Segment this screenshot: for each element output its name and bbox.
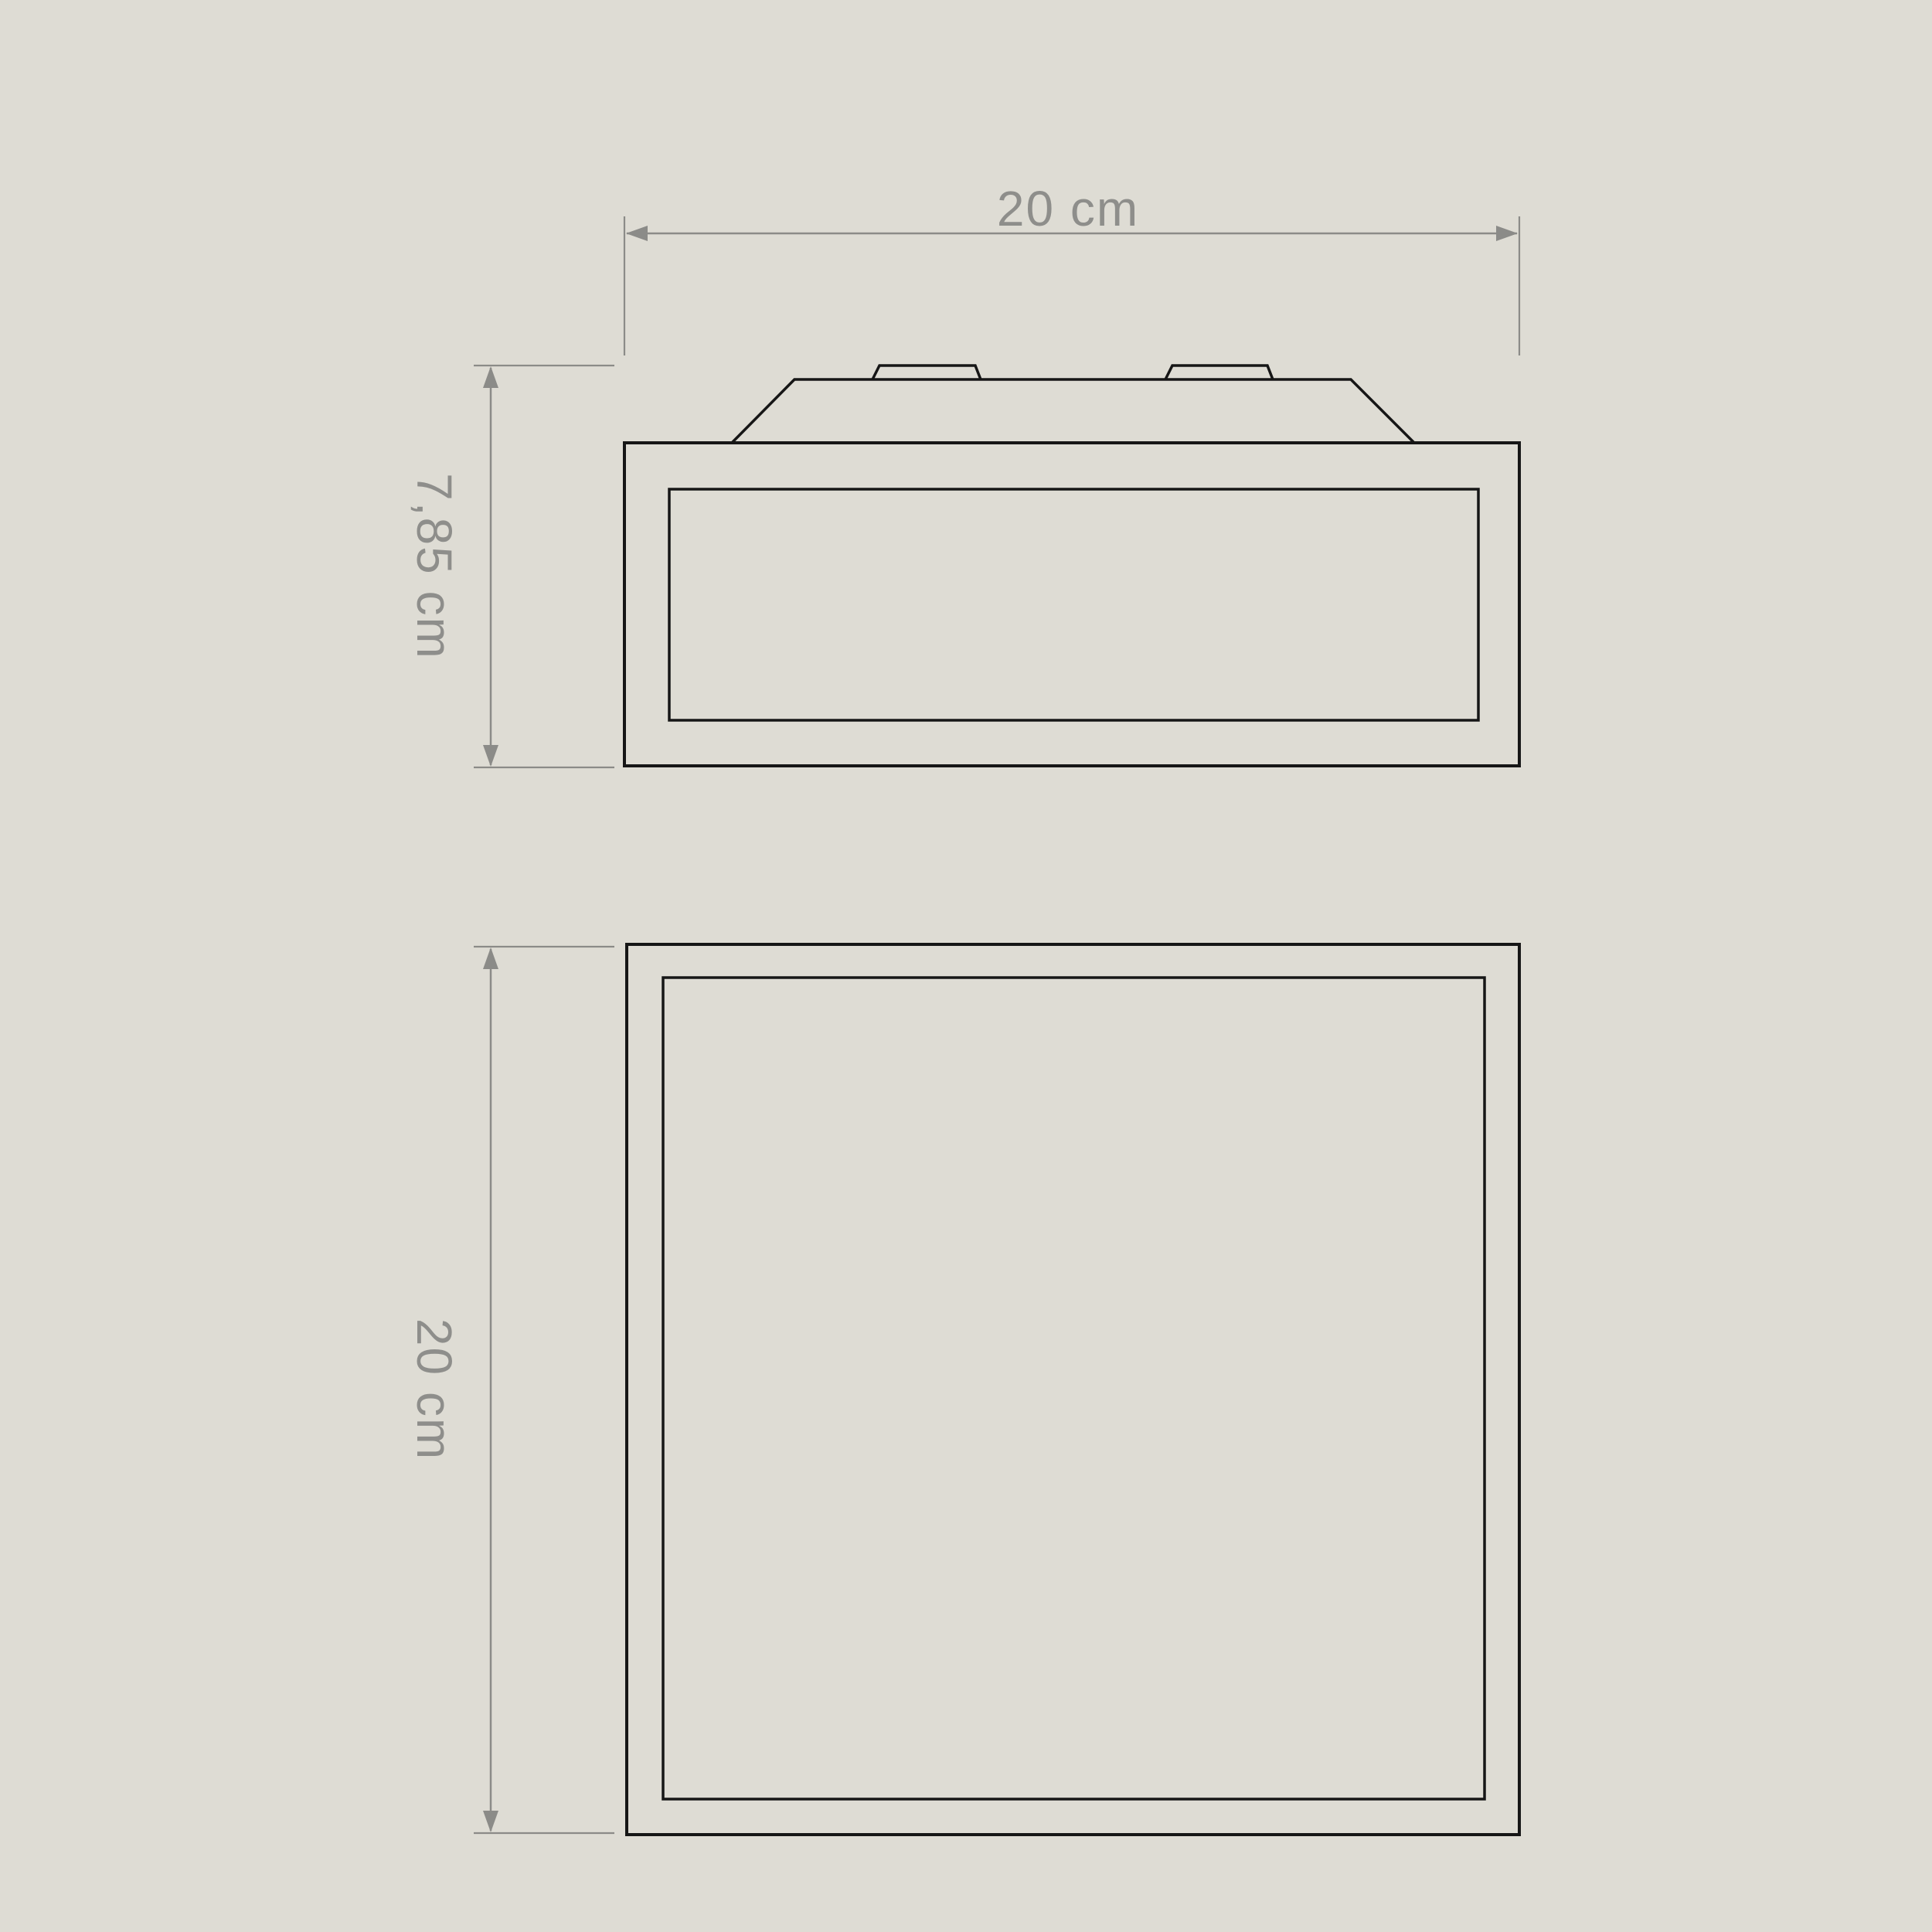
drawing-canvas: 20 cm 7,85 cm 20 cm bbox=[0, 0, 1932, 1932]
height-dimension-label: 7,85 cm bbox=[406, 473, 462, 660]
dimension-drawing: 20 cm 7,85 cm 20 cm bbox=[0, 0, 1932, 1932]
drawing-background bbox=[0, 0, 1932, 1932]
depth-dimension-label: 20 cm bbox=[406, 1318, 462, 1461]
width-dimension-label: 20 cm bbox=[997, 181, 1139, 236]
